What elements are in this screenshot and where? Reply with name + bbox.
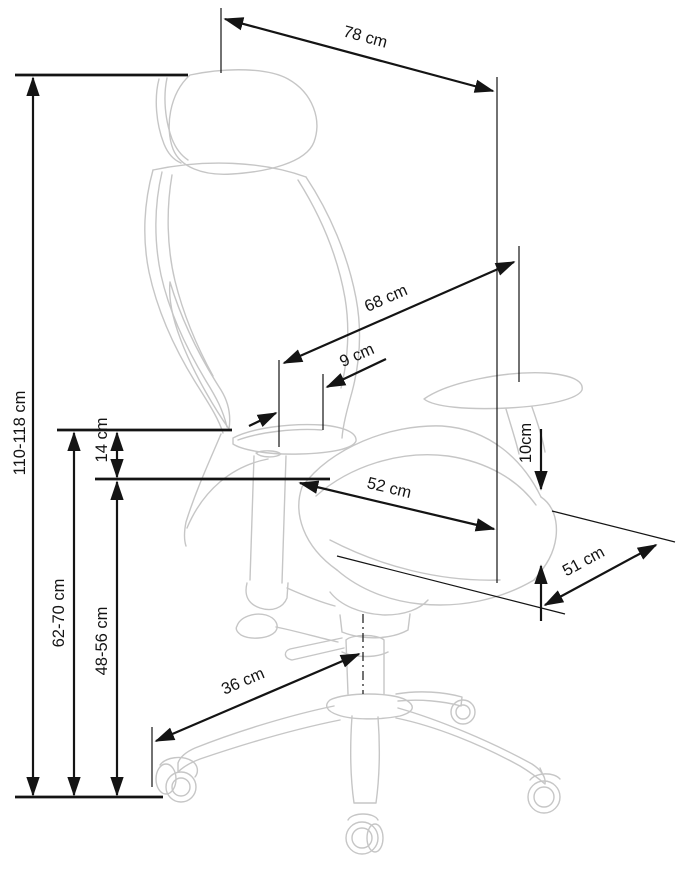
armrest-near-post xyxy=(250,456,286,583)
headrest-stem-inner xyxy=(165,78,188,160)
dimension-seat-front-thickness: 10cm xyxy=(517,423,541,621)
headrest-outline xyxy=(169,70,317,175)
dimension-label-seat-front-thickness: 10cm xyxy=(517,423,535,463)
caster-front xyxy=(346,814,383,854)
gas-cylinder xyxy=(342,636,388,695)
dimension-backrest-to-armrest: 9 cm xyxy=(249,340,386,430)
dimension-label-headrest-width: 78 cm xyxy=(341,23,389,52)
dimension-label-seat-height: 48-56 cm xyxy=(93,607,111,676)
base-hub xyxy=(327,694,413,719)
backrest-lower-frame xyxy=(185,434,222,546)
dimension-seat-width: 52 cm xyxy=(300,474,494,529)
dimension-label-seat-width: 52 cm xyxy=(365,474,413,502)
seat-front-nose xyxy=(534,497,556,580)
seat-mechanism xyxy=(330,592,428,638)
dimension-label-base-leg-reach: 36 cm xyxy=(219,664,267,698)
dimension-seat-height: 48-56 cm xyxy=(93,479,330,795)
seat-surface-contour xyxy=(330,540,500,580)
backrest-left-inner xyxy=(156,172,227,427)
dimension-line xyxy=(284,262,514,363)
base-leg-rear xyxy=(396,692,462,706)
dimension-backrest-length: 68 cm xyxy=(279,246,519,447)
base-leg-front xyxy=(351,716,380,803)
diagram-canvas: 78 cm 68 cm 9 cm 110-118 cm 62-70 cm 14 … xyxy=(0,0,679,881)
dimension-seat-depth: 51 cm xyxy=(337,511,675,614)
dimension-armrest-height: 62-70 cm xyxy=(50,430,232,795)
armrest-near-foot xyxy=(246,583,288,610)
extension-line xyxy=(552,511,675,542)
base-leg-right xyxy=(396,708,545,784)
dimension-armrest-over-seat: 14 cm xyxy=(93,418,117,477)
dimension-arrow-left xyxy=(249,413,276,426)
dimension-label-total-height: 110-118 cm xyxy=(11,391,29,476)
seat-left-side xyxy=(299,487,337,570)
chair-dimension-diagram: 78 cm 68 cm 9 cm 110-118 cm 62-70 cm 14 … xyxy=(0,0,679,881)
armrest-near-bracket xyxy=(287,588,335,606)
tilt-lever-arm xyxy=(276,627,338,642)
dimension-label-armrest-over-seat: 14 cm xyxy=(93,418,111,463)
tilt-lever-paddle xyxy=(236,614,277,638)
dimension-label-armrest-height: 62-70 cm xyxy=(50,579,68,648)
seat-top-edge xyxy=(302,426,541,497)
armrest-near-pad xyxy=(233,425,356,455)
armrest-far-pad xyxy=(424,373,582,409)
base-leg-left xyxy=(178,706,340,772)
caster-rear xyxy=(451,700,475,724)
seat-rear-hump xyxy=(187,459,268,528)
seat-top-inner xyxy=(316,455,536,505)
caster-left xyxy=(156,758,197,802)
backrest-right-edge xyxy=(306,177,359,438)
